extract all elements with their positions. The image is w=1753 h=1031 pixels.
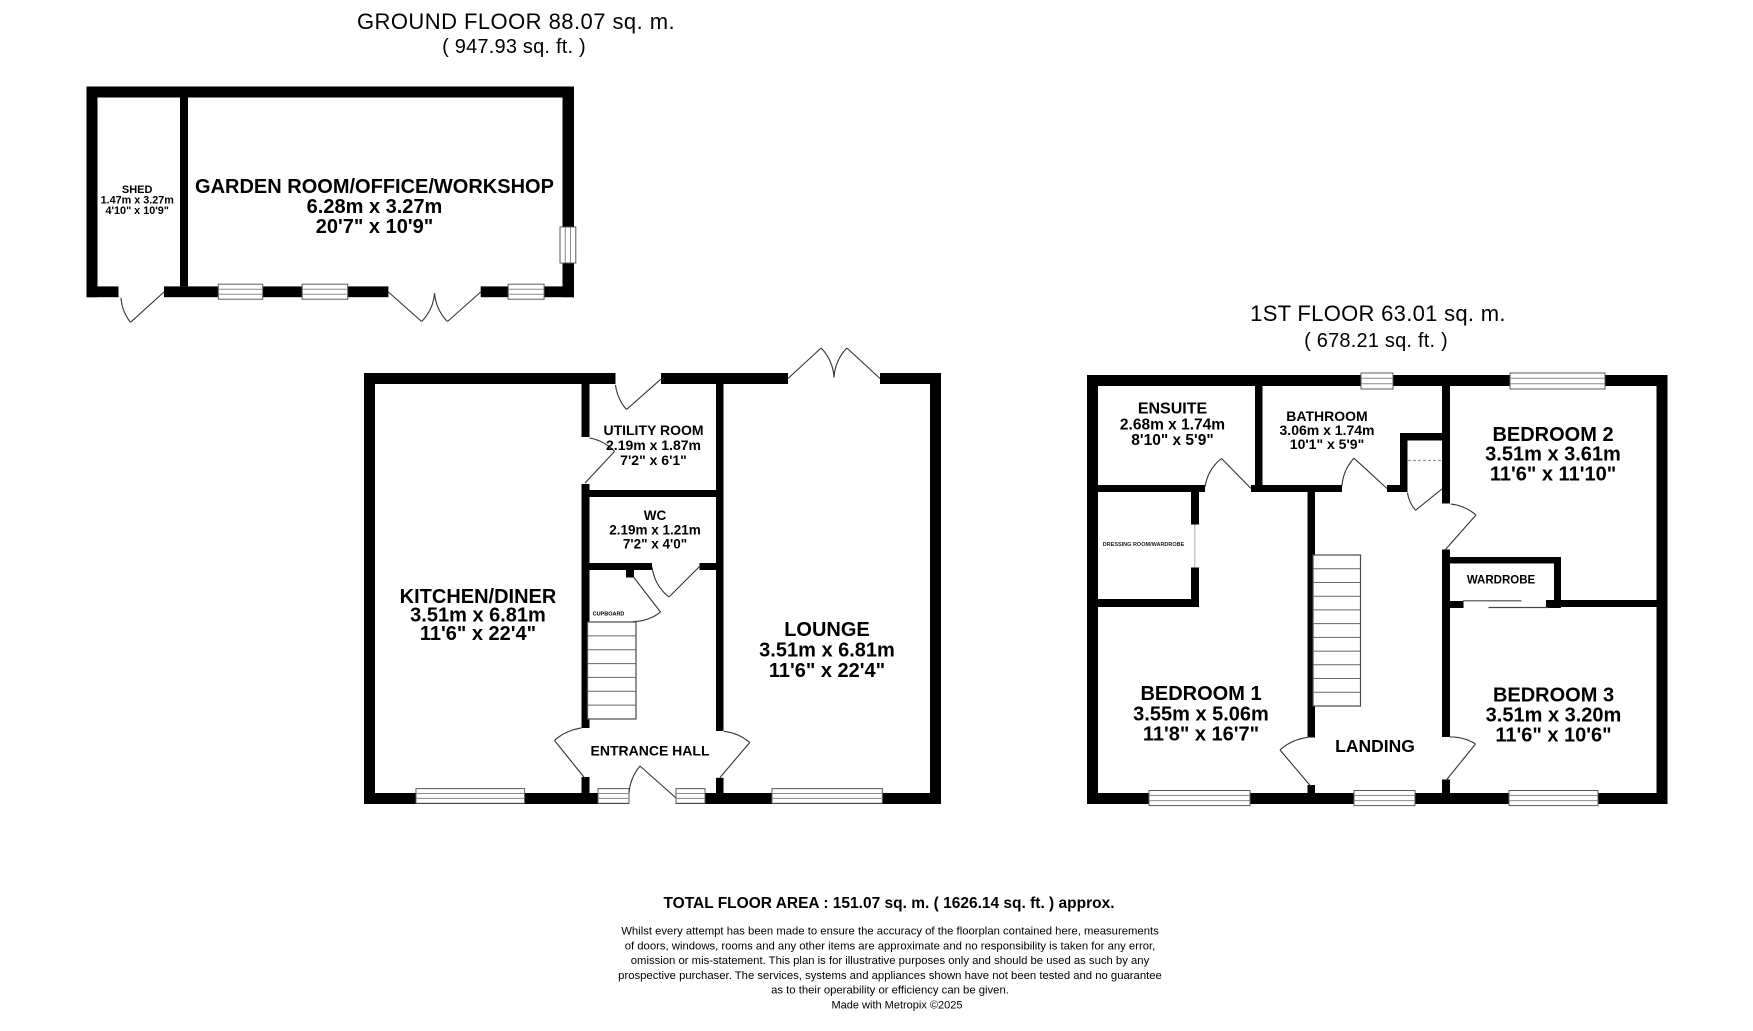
svg-text:Made with Metropix ©2025: Made with Metropix ©2025 xyxy=(831,1000,962,1012)
svg-text:DRESSING ROOM/WARDROBE: DRESSING ROOM/WARDROBE xyxy=(1103,542,1185,548)
svg-text:2.68m x 1.74m: 2.68m x 1.74m xyxy=(1120,416,1225,433)
svg-text:prospective purchaser. The se: prospective purchaser. The services, sys… xyxy=(618,970,1162,982)
svg-text:11'6" x 10'6": 11'6" x 10'6" xyxy=(1495,725,1611,747)
svg-text:3.51m x 6.81m: 3.51m x 6.81m xyxy=(759,640,895,662)
svg-text:7'2" x 6'1": 7'2" x 6'1" xyxy=(620,452,687,468)
svg-text:ENTRANCE HALL: ENTRANCE HALL xyxy=(591,743,710,759)
svg-text:GROUND FLOOR 88.07 sq. m.: GROUND FLOOR 88.07 sq. m. xyxy=(357,9,675,34)
svg-text:LOUNGE: LOUNGE xyxy=(784,619,870,641)
svg-text:8'10" x 5'9": 8'10" x 5'9" xyxy=(1131,432,1213,449)
svg-text:11'6" x 22'4": 11'6" x 22'4" xyxy=(420,623,536,645)
svg-text:2.19m x 1.87m: 2.19m x 1.87m xyxy=(606,437,701,453)
svg-text:Whilst every attempt has been: Whilst every attempt has been made to en… xyxy=(621,926,1159,938)
svg-text:20'7" x 10'9": 20'7" x 10'9" xyxy=(316,216,433,238)
svg-text:11'6" x 22'4": 11'6" x 22'4" xyxy=(769,660,885,682)
svg-text:WC: WC xyxy=(644,508,667,523)
svg-text:3.55m x 5.06m: 3.55m x 5.06m xyxy=(1133,704,1269,726)
svg-text:UTILITY ROOM: UTILITY ROOM xyxy=(603,422,703,438)
svg-text:3.51m x 3.20m: 3.51m x 3.20m xyxy=(1486,705,1622,727)
svg-text:BEDROOM 3: BEDROOM 3 xyxy=(1493,685,1614,707)
svg-text:3.51m x 3.61m: 3.51m x 3.61m xyxy=(1485,444,1621,466)
svg-text:11'8" x 16'7": 11'8" x 16'7" xyxy=(1143,724,1259,746)
svg-text:1ST FLOOR 63.01 sq. m.: 1ST FLOOR 63.01 sq. m. xyxy=(1250,301,1506,326)
svg-text:11'6" x 11'10": 11'6" x 11'10" xyxy=(1490,464,1616,486)
svg-text:( 947.93 sq. ft. ): ( 947.93 sq. ft. ) xyxy=(442,36,586,58)
svg-text:7'2" x 4'0": 7'2" x 4'0" xyxy=(623,537,687,552)
svg-text:WARDROBE: WARDROBE xyxy=(1467,575,1536,587)
svg-text:GARDEN ROOM/OFFICE/WORKSHOP: GARDEN ROOM/OFFICE/WORKSHOP xyxy=(195,176,554,198)
svg-text:2.19m x 1.21m: 2.19m x 1.21m xyxy=(609,523,701,538)
svg-text:4'10" x 10'9": 4'10" x 10'9" xyxy=(105,205,168,217)
svg-text:omission or mis-statement. Thi: omission or mis-statement. This plan is … xyxy=(631,955,1150,967)
svg-text:TOTAL FLOOR AREA : 151.07 sq.: TOTAL FLOOR AREA : 151.07 sq. m. ( 1626.… xyxy=(663,895,1114,912)
svg-text:LANDING: LANDING xyxy=(1335,736,1415,756)
svg-text:10'1" x 5'9": 10'1" x 5'9" xyxy=(1290,436,1364,452)
svg-text:BEDROOM 1: BEDROOM 1 xyxy=(1140,683,1261,705)
svg-text:( 678.21 sq. ft. ): ( 678.21 sq. ft. ) xyxy=(1304,330,1448,352)
svg-text:ENSUITE: ENSUITE xyxy=(1138,401,1208,418)
svg-text:6.28m x 3.27m: 6.28m x 3.27m xyxy=(307,196,443,218)
svg-text:as to their operability or eff: as to their operability or efficiency ca… xyxy=(771,985,1009,997)
svg-text:CUPBOARD: CUPBOARD xyxy=(593,612,625,618)
svg-text:of doors, windows, rooms and a: of doors, windows, rooms and any other i… xyxy=(625,940,1156,952)
